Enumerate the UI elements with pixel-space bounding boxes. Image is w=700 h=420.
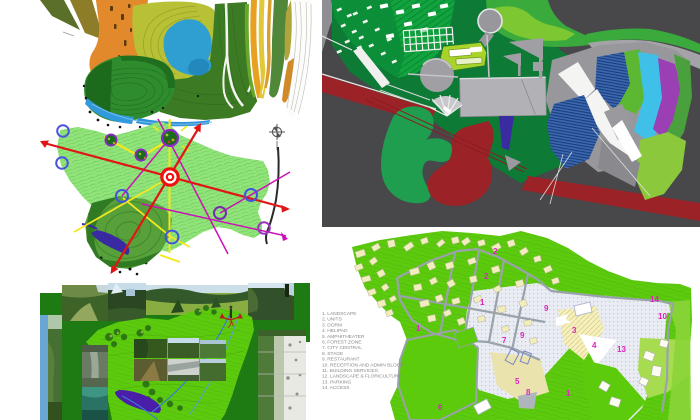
svg-text:14. ACCESS: 14. ACCESS bbox=[322, 385, 350, 391]
svg-text:1. LANDSCAPE: 1. LANDSCAPE bbox=[322, 311, 357, 317]
svg-text:1: 1 bbox=[480, 298, 485, 307]
svg-text:9: 9 bbox=[544, 304, 549, 313]
svg-text:1: 1 bbox=[566, 389, 571, 398]
svg-text:12. LANDSCAPE & FLORICULTURE: 12. LANDSCAPE & FLORICULTURE bbox=[322, 374, 402, 380]
svg-text:4. HELIPAD: 4. HELIPAD bbox=[322, 328, 348, 334]
svg-text:4: 4 bbox=[592, 341, 597, 350]
svg-text:1: 1 bbox=[416, 324, 421, 333]
svg-text:10. RECEPTION AND ADMIN BLOCK: 10. RECEPTION AND ADMIN BLOCK bbox=[322, 362, 404, 368]
svg-text:3: 3 bbox=[572, 326, 577, 335]
svg-text:11. BUILDING SERVICES.: 11. BUILDING SERVICES. bbox=[322, 368, 379, 374]
svg-text:6. FOREST ZONE: 6. FOREST ZONE bbox=[322, 340, 362, 346]
svg-text:6: 6 bbox=[438, 403, 443, 412]
svg-text:14: 14 bbox=[650, 295, 659, 304]
svg-text:13. PARKING: 13. PARKING bbox=[322, 379, 352, 385]
svg-text:7: 7 bbox=[502, 336, 507, 345]
svg-text:9: 9 bbox=[520, 331, 525, 340]
svg-text:10: 10 bbox=[658, 312, 667, 321]
svg-text:2. UNITS: 2. UNITS bbox=[322, 317, 342, 323]
svg-text:5: 5 bbox=[515, 377, 520, 386]
svg-text:2: 2 bbox=[493, 247, 498, 256]
svg-text:13: 13 bbox=[617, 345, 626, 354]
svg-text:2: 2 bbox=[484, 272, 489, 281]
svg-text:8: 8 bbox=[526, 388, 531, 397]
svg-text:3. DORM: 3. DORM bbox=[322, 322, 342, 328]
svg-text:8. STAGE: 8. STAGE bbox=[322, 351, 344, 357]
svg-text:5. AMPHITHEATER: 5. AMPHITHEATER bbox=[322, 334, 365, 340]
svg-text:9. RESTAURANT: 9. RESTAURANT bbox=[322, 357, 360, 363]
svg-text:7. CITY CENTRAL: 7. CITY CENTRAL bbox=[322, 345, 362, 351]
